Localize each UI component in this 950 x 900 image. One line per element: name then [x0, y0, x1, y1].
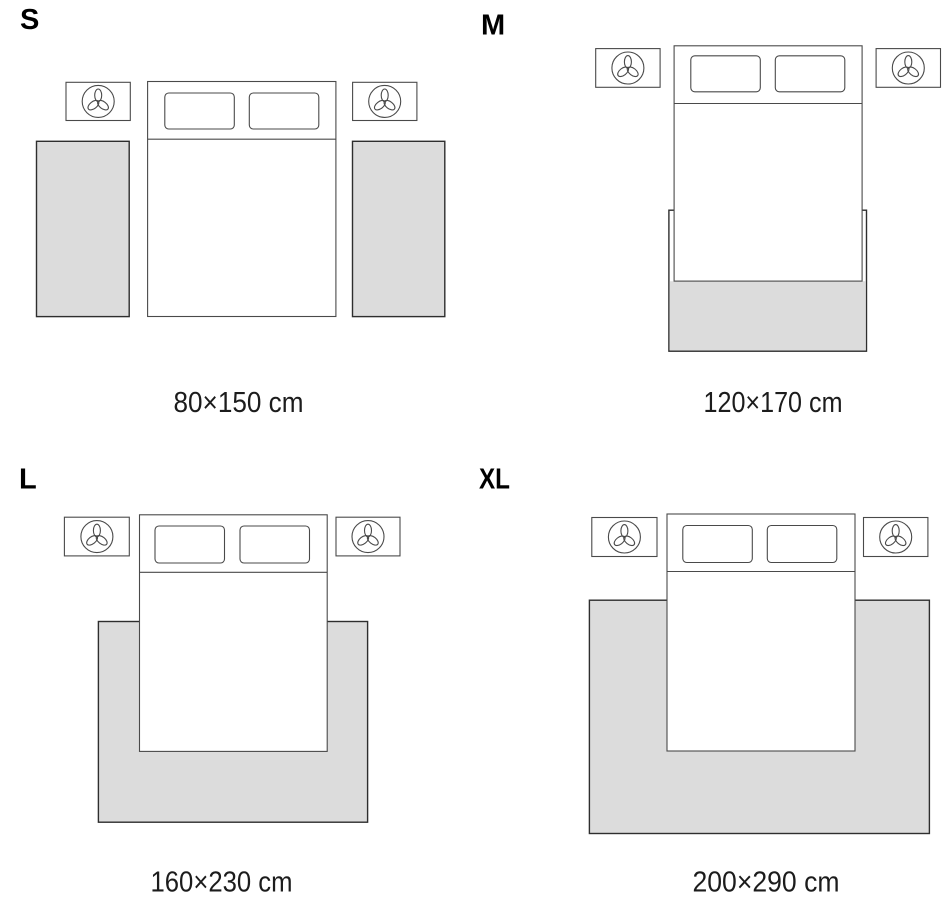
svg-text:200×290 cm: 200×290 cm — [693, 867, 840, 899]
svg-text:M: M — [481, 10, 505, 42]
svg-text:80×150 cm: 80×150 cm — [174, 387, 304, 419]
svg-text:160×230 cm: 160×230 cm — [151, 867, 293, 899]
svg-text:120×170 cm: 120×170 cm — [704, 387, 843, 419]
svg-text:XL: XL — [479, 464, 510, 496]
svg-text:L: L — [19, 464, 37, 496]
svg-text:S: S — [20, 4, 39, 36]
